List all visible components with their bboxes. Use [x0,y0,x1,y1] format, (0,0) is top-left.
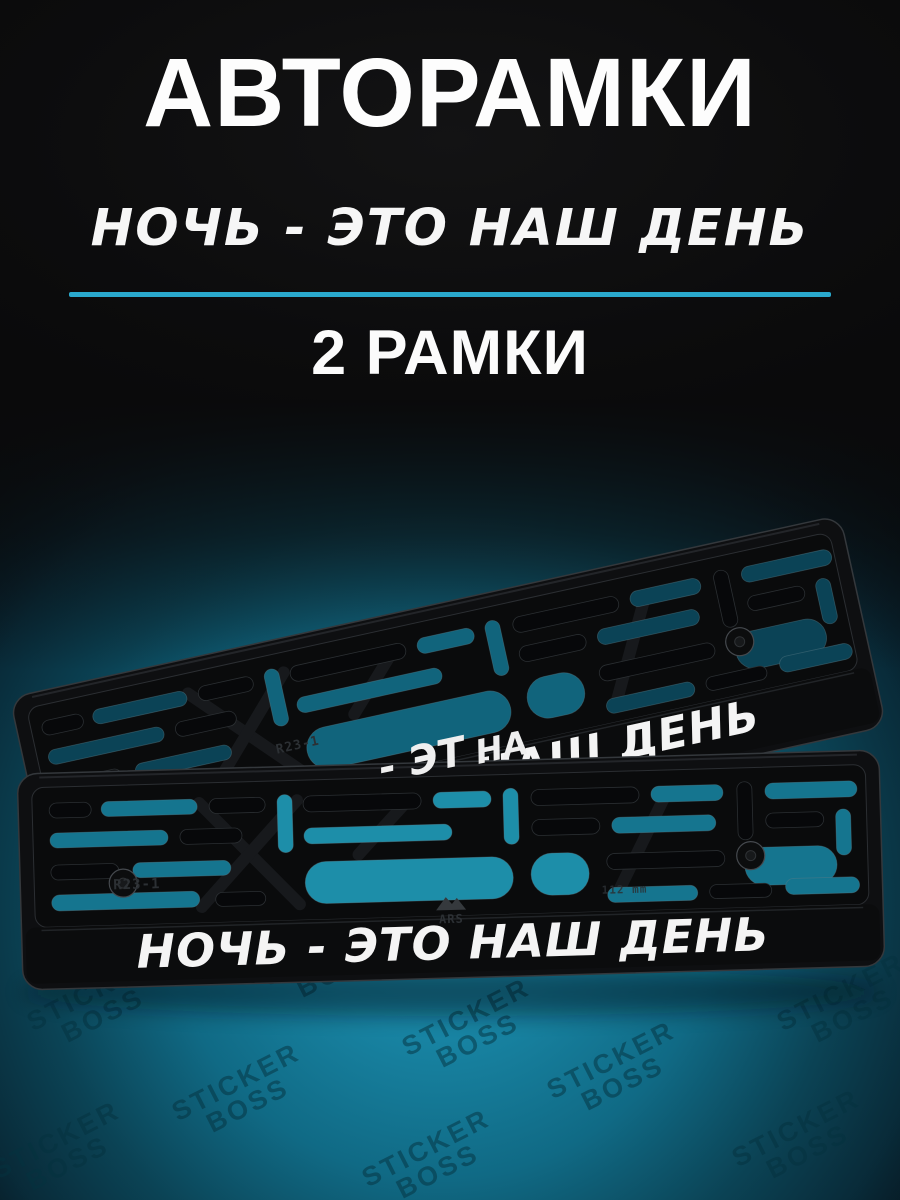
frame-slot [651,784,723,802]
header: АВТОРАМКИ НОЧЬ - ЭТО НАШ ДЕНЬ 2 РАМКИ [0,0,900,400]
frame-slot [303,793,421,812]
frame-slot [305,856,514,904]
frame-slot [531,852,590,896]
frame-slot [216,891,266,906]
product-photo: STICKERBOSSSTICKERBOSSSTICKERBOSSSTICKER… [0,400,900,1200]
frame-slot [50,830,168,848]
frame-slot [133,860,231,878]
frame-slot [766,812,824,829]
frame-slot [503,788,520,844]
frame-bottom: R23-1 112 mm ARS НОЧЬ - ЭТО НАШ ДЕНЬ [17,750,885,990]
frame-slot [531,787,639,806]
frame-slot [785,877,859,895]
frame-slot [433,791,491,809]
divider-line [69,292,831,297]
frame-bottom-mold-mark: R23-1 [113,876,161,893]
frame-slot [101,799,197,817]
frame-slot [49,802,91,818]
frame-slot [209,797,265,814]
frame-slot [607,850,725,869]
frame-slot [612,815,716,834]
frame-bottom-size-label: 112 mm [601,883,647,897]
page-title: АВТОРАМКИ [0,0,900,139]
frame-slot [835,809,851,855]
frame-slot [180,828,242,845]
slogan-text: НОЧЬ - ЭТО НАШ ДЕНЬ [0,199,900,258]
frame-slot [710,883,772,899]
frame-slot [277,794,294,852]
frame-slot [532,818,600,836]
frame-slot [51,863,119,880]
quantity-text: 2 РАМКИ [0,317,900,389]
frame-slot [765,781,857,800]
frame-slot [737,782,754,840]
